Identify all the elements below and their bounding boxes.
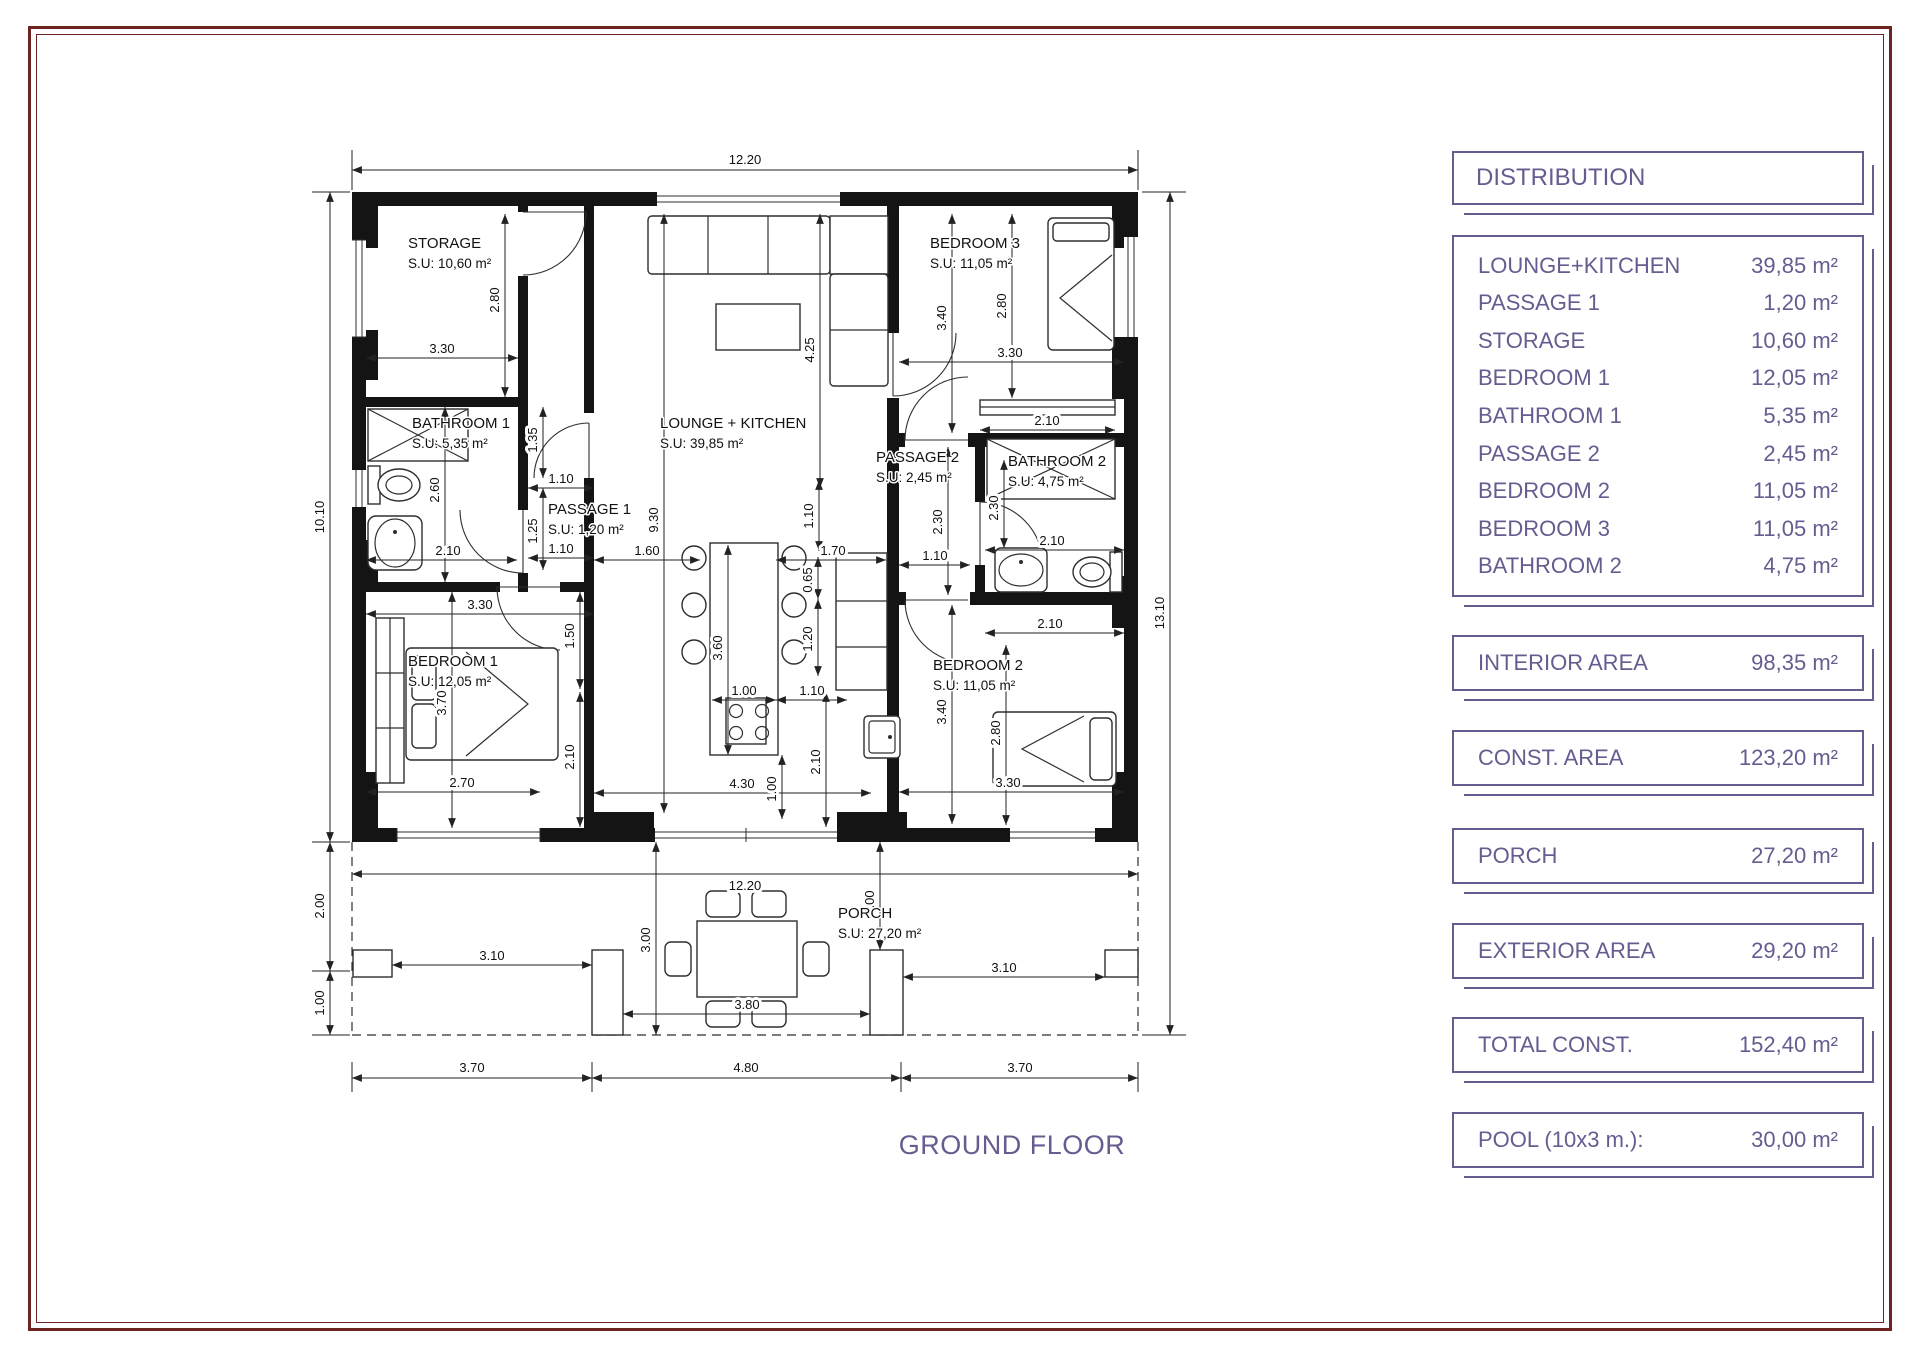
dim-text: 2.30	[930, 509, 945, 534]
room-area: 4,75 m²	[1763, 553, 1838, 579]
dim-text: 3.10	[991, 960, 1016, 975]
dim-text: 1.20	[800, 626, 815, 651]
dim-text: 1.35	[525, 427, 540, 452]
dim-text: 1.10	[548, 471, 573, 486]
room-label-lounge: LOUNGE + KITCHEN	[660, 415, 806, 432]
room-label-bathroom2: BATHROOM 2	[1008, 453, 1106, 470]
table-row: PASSAGE 1 1,20 m²	[1454, 290, 1862, 316]
room-label: LOUNGE+KITCHEN	[1478, 253, 1680, 279]
dim-text: 3.80	[734, 997, 759, 1012]
room-label: STORAGE	[1478, 328, 1585, 354]
room-label-bedroom3: BEDROOM 3	[930, 235, 1020, 252]
dim-text: 2.00	[312, 893, 327, 918]
kitchen-island	[682, 543, 806, 755]
distribution-title-box: DISTRIBUTION	[1452, 151, 1864, 205]
total-value: 30,00 m²	[1751, 1127, 1838, 1153]
room-label: BATHROOM 2	[1478, 553, 1622, 579]
dim-text: 1.25	[525, 518, 540, 543]
table-row: PASSAGE 2 2,45 m²	[1454, 441, 1862, 467]
dim-text: 1.70	[820, 543, 845, 558]
total-value: 29,20 m²	[1751, 938, 1838, 964]
table-row: BATHROOM 2 4,75 m²	[1454, 553, 1862, 579]
dim-text: 1.10	[922, 548, 947, 563]
dim-text: 3.30	[467, 597, 492, 612]
dim-text: 1.00	[731, 683, 756, 698]
dim-text: 12.20	[729, 152, 762, 167]
exterior-area-box: EXTERIOR AREA 29,20 m²	[1452, 923, 1864, 979]
room-area: 11,05 m²	[1753, 478, 1838, 504]
dim-text: 4.25	[802, 337, 817, 362]
dim-text: 2.80	[994, 293, 1009, 318]
dim-text: 2.30	[986, 495, 1001, 520]
room-label: BEDROOM 1	[1478, 365, 1610, 391]
room-area: 39,85 m²	[1751, 253, 1838, 279]
room-label-passage1: PASSAGE 1	[548, 501, 631, 518]
total-label: POOL (10x3 m.):	[1478, 1127, 1643, 1153]
dim-text: 2.10	[435, 543, 460, 558]
total-value: 27,20 m²	[1751, 843, 1838, 869]
room-area-porch: S.U: 27,20 m²	[838, 926, 922, 941]
table-row: LOUNGE+KITCHEN 39,85 m²	[1454, 253, 1862, 279]
room-label-bathroom1: BATHROOM 1	[412, 415, 510, 432]
room-label: BEDROOM 2	[1478, 478, 1610, 504]
dim-text: 1.60	[634, 543, 659, 558]
total-label: EXTERIOR AREA	[1478, 938, 1655, 964]
table-row: STORAGE 10,60 m²	[1454, 328, 1862, 354]
dim-text: 3.40	[934, 699, 949, 724]
porch-area-box: PORCH 27,20 m²	[1452, 828, 1864, 884]
room-label: PASSAGE 2	[1478, 441, 1600, 467]
dim-text: 3.00	[638, 927, 653, 952]
table-row: BATHROOM 1 5,35 m²	[1454, 403, 1862, 429]
dim-text: 2.10	[808, 749, 823, 774]
room-area-bedroom2: S.U: 11,05 m²	[933, 678, 1016, 693]
room-area: 5,35 m²	[1763, 403, 1838, 429]
dim-text: 4.30	[729, 776, 754, 791]
room-area-bedroom3: S.U: 11,05 m²	[930, 256, 1013, 271]
room-area: 11,05 m²	[1753, 516, 1838, 542]
dim-text: 3.30	[429, 341, 454, 356]
room-area: 2,45 m²	[1763, 441, 1838, 467]
room-area: 1,20 m²	[1763, 290, 1838, 316]
dim-text: 3.30	[995, 775, 1020, 790]
sofa-set	[648, 216, 888, 386]
table-row: BEDROOM 2 11,05 m²	[1454, 478, 1862, 504]
dim-text: 1.50	[562, 623, 577, 648]
total-label: PORCH	[1478, 843, 1557, 869]
dim-text: 1.00	[312, 990, 327, 1015]
floor-title: GROUND FLOOR	[872, 1130, 1152, 1161]
room-area-bathroom1: S.U: 5,35 m²	[412, 436, 488, 451]
dim-text: 3.70	[1007, 1060, 1032, 1075]
dim-text: 2.70	[449, 775, 474, 790]
table-row: BEDROOM 1 12,05 m²	[1454, 365, 1862, 391]
dim-text: 2.10	[1034, 413, 1059, 428]
total-label: TOTAL CONST.	[1478, 1032, 1633, 1058]
room-label-bedroom1: BEDROOM 1	[408, 653, 498, 670]
dim-text: 2.10	[1039, 533, 1064, 548]
dim-text: 9.30	[646, 507, 661, 532]
room-label: BEDROOM 3	[1478, 516, 1610, 542]
pool-box: POOL (10x3 m.): 30,00 m²	[1452, 1112, 1864, 1168]
dim-text: 3.30	[997, 345, 1022, 360]
dim-text: 4.80	[733, 1060, 758, 1075]
room-area-passage1: S.U: 1,20 m²	[548, 522, 624, 537]
dim-text: 3.70	[434, 690, 449, 715]
room-area-bathroom2: S.U: 4,75 m²	[1008, 474, 1084, 489]
room-area-lounge: S.U: 39,85 m²	[660, 436, 744, 451]
distribution-title: DISTRIBUTION	[1476, 164, 1645, 192]
dim-text: 3.60	[710, 635, 725, 660]
table-row: BEDROOM 3 11,05 m²	[1454, 516, 1862, 542]
room-area-storage: S.U: 10,60 m²	[408, 256, 492, 271]
dim-text: 13.10	[1152, 597, 1167, 630]
room-area-passage2: S.U: 2,45 m²	[876, 470, 952, 485]
dim-text: 1.10	[799, 683, 824, 698]
room-areas-table: LOUNGE+KITCHEN 39,85 m² PASSAGE 1 1,20 m…	[1452, 235, 1864, 597]
dim-text: 2.10	[1037, 616, 1062, 631]
dim-text: 3.70	[459, 1060, 484, 1075]
room-label-storage: STORAGE	[408, 235, 481, 252]
dim-text: 1.10	[801, 503, 816, 528]
total-value: 98,35 m²	[1751, 650, 1838, 676]
dim-text: 0.65	[800, 567, 815, 592]
dim-text: 3.10	[479, 948, 504, 963]
dim-text: 2.80	[988, 720, 1003, 745]
total-const-box: TOTAL CONST. 152,40 m²	[1452, 1017, 1864, 1073]
room-area: 12,05 m²	[1751, 365, 1838, 391]
dim-text: 2.10	[562, 744, 577, 769]
dim-text: 3.40	[934, 305, 949, 330]
dim-text: 12.20	[729, 878, 762, 893]
interior-area-box: INTERIOR AREA 98,35 m²	[1452, 635, 1864, 691]
room-area: 10,60 m²	[1751, 328, 1838, 354]
room-label: BATHROOM 1	[1478, 403, 1622, 429]
room-label-passage2: PASSAGE 2	[876, 449, 959, 466]
room-label-bedroom2: BEDROOM 2	[933, 657, 1023, 674]
total-value: 152,40 m²	[1739, 1032, 1838, 1058]
total-label: INTERIOR AREA	[1478, 650, 1648, 676]
total-label: CONST. AREA	[1478, 745, 1623, 771]
dim-text: 1.00	[764, 776, 779, 801]
const-area-box: CONST. AREA 123,20 m²	[1452, 730, 1864, 786]
dim-text: 1.10	[548, 541, 573, 556]
room-area-bedroom1: S.U: 12,05 m²	[408, 674, 492, 689]
dim-text: 2.60	[427, 477, 442, 502]
room-label: PASSAGE 1	[1478, 290, 1600, 316]
dim-text: 2.80	[487, 287, 502, 312]
total-value: 123,20 m²	[1739, 745, 1838, 771]
dim-text: 10.10	[312, 501, 327, 534]
room-label-porch: PORCH	[838, 905, 892, 922]
